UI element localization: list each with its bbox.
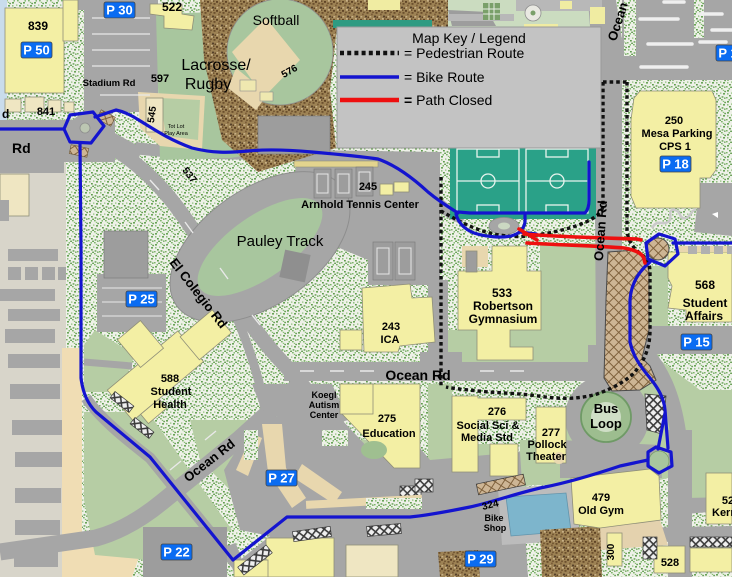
svg-text:588: 588 bbox=[161, 373, 179, 385]
svg-text:245: 245 bbox=[359, 181, 377, 193]
svg-text:Mesa Parking: Mesa Parking bbox=[642, 128, 713, 140]
svg-text:597: 597 bbox=[151, 73, 169, 85]
svg-text:= Path Closed: = Path Closed bbox=[404, 92, 492, 108]
svg-text:= Pedestrian Route: = Pedestrian Route bbox=[404, 45, 524, 61]
svg-text:839: 839 bbox=[28, 19, 48, 33]
svg-text:Map Key / Legend: Map Key / Legend bbox=[412, 30, 526, 46]
svg-text:Social Sci &: Social Sci & bbox=[457, 420, 520, 432]
svg-text:528: 528 bbox=[661, 557, 679, 569]
svg-text:Education: Education bbox=[362, 428, 415, 440]
svg-text:Koegl: Koegl bbox=[311, 390, 336, 400]
svg-text:250: 250 bbox=[665, 115, 683, 127]
svg-text:Theater: Theater bbox=[526, 451, 566, 463]
svg-text:522: 522 bbox=[162, 0, 182, 14]
svg-text:Pauley Track: Pauley Track bbox=[237, 233, 324, 250]
svg-text:Gymnasium: Gymnasium bbox=[469, 312, 538, 326]
svg-text:Center: Center bbox=[310, 410, 339, 420]
svg-text:Rugby: Rugby bbox=[185, 76, 231, 93]
svg-text:Bus: Bus bbox=[594, 401, 619, 416]
svg-text:841: 841 bbox=[37, 106, 55, 118]
svg-text:P 15: P 15 bbox=[683, 335, 710, 350]
svg-text:Robertson: Robertson bbox=[473, 299, 533, 313]
svg-text:P 27: P 27 bbox=[268, 471, 295, 486]
svg-text:Stadium Rd: Stadium Rd bbox=[83, 78, 136, 89]
svg-text:Arnhold Tennis Center: Arnhold Tennis Center bbox=[301, 199, 419, 211]
svg-text:P 1: P 1 bbox=[718, 46, 732, 61]
svg-text:Autism: Autism bbox=[309, 400, 340, 410]
svg-text:275: 275 bbox=[378, 413, 396, 425]
svg-text:52: 52 bbox=[722, 495, 732, 507]
svg-text:P 25: P 25 bbox=[128, 292, 155, 307]
svg-text:243: 243 bbox=[382, 321, 400, 333]
svg-text:Tot Lot: Tot Lot bbox=[168, 124, 185, 130]
svg-text:Lacrosse/: Lacrosse/ bbox=[181, 57, 251, 74]
svg-text:Softball: Softball bbox=[253, 12, 300, 28]
svg-text:300: 300 bbox=[606, 543, 617, 560]
svg-text:P 50: P 50 bbox=[23, 43, 50, 58]
svg-text:Bike: Bike bbox=[484, 513, 503, 523]
svg-text:P 30: P 30 bbox=[106, 3, 133, 18]
svg-text:P 22: P 22 bbox=[163, 545, 190, 560]
svg-text:568: 568 bbox=[695, 278, 715, 292]
svg-text:P 18: P 18 bbox=[662, 157, 689, 172]
svg-text:Rd: Rd bbox=[12, 140, 31, 156]
svg-text:Student: Student bbox=[683, 296, 728, 310]
svg-text:Student: Student bbox=[151, 386, 192, 398]
svg-text:277: 277 bbox=[542, 427, 560, 439]
svg-text:Ocean Rd: Ocean Rd bbox=[385, 367, 450, 383]
svg-text:479: 479 bbox=[592, 492, 610, 504]
svg-text:Affairs: Affairs bbox=[685, 309, 723, 323]
svg-text:Loop: Loop bbox=[590, 416, 622, 431]
svg-text:533: 533 bbox=[492, 286, 512, 300]
svg-text:Health: Health bbox=[153, 399, 187, 411]
svg-text:Pollock: Pollock bbox=[527, 439, 567, 451]
svg-text:CPS 1: CPS 1 bbox=[659, 141, 691, 153]
svg-text:ICA: ICA bbox=[381, 334, 400, 346]
svg-text:Shop: Shop bbox=[484, 523, 507, 533]
svg-text:Play Area: Play Area bbox=[164, 131, 188, 137]
svg-text:P 29: P 29 bbox=[467, 552, 494, 567]
svg-text:Kern: Kern bbox=[712, 507, 732, 519]
svg-text:Old Gym: Old Gym bbox=[578, 505, 624, 517]
svg-text:Media Std: Media Std bbox=[461, 432, 513, 444]
svg-text:276: 276 bbox=[488, 406, 506, 418]
svg-text:d: d bbox=[2, 107, 9, 121]
svg-text:= Bike Route: = Bike Route bbox=[404, 69, 485, 85]
